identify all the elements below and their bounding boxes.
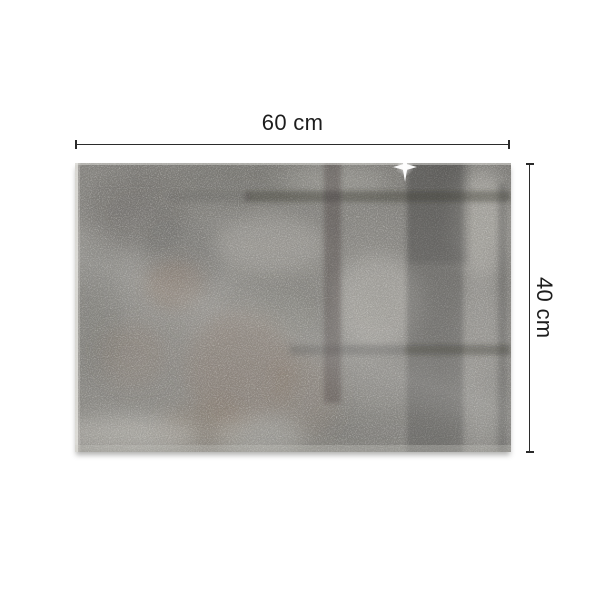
- height-dimension-label: 40 cm: [531, 164, 557, 452]
- width-line-left-tick: [75, 140, 77, 149]
- glass-gloss-overlay: [75, 163, 511, 452]
- concrete-texture-layers: [55, 158, 529, 468]
- height-dimension-line: [529, 164, 530, 452]
- width-dimension-label: 60 cm: [76, 110, 509, 136]
- width-line-right-tick: [508, 140, 510, 149]
- glass-board-image: [75, 163, 511, 452]
- concrete-texture-image: [75, 163, 511, 452]
- product-dimension-diagram: 60 cm 40 cm: [0, 0, 600, 600]
- width-dimension-line: [76, 144, 509, 145]
